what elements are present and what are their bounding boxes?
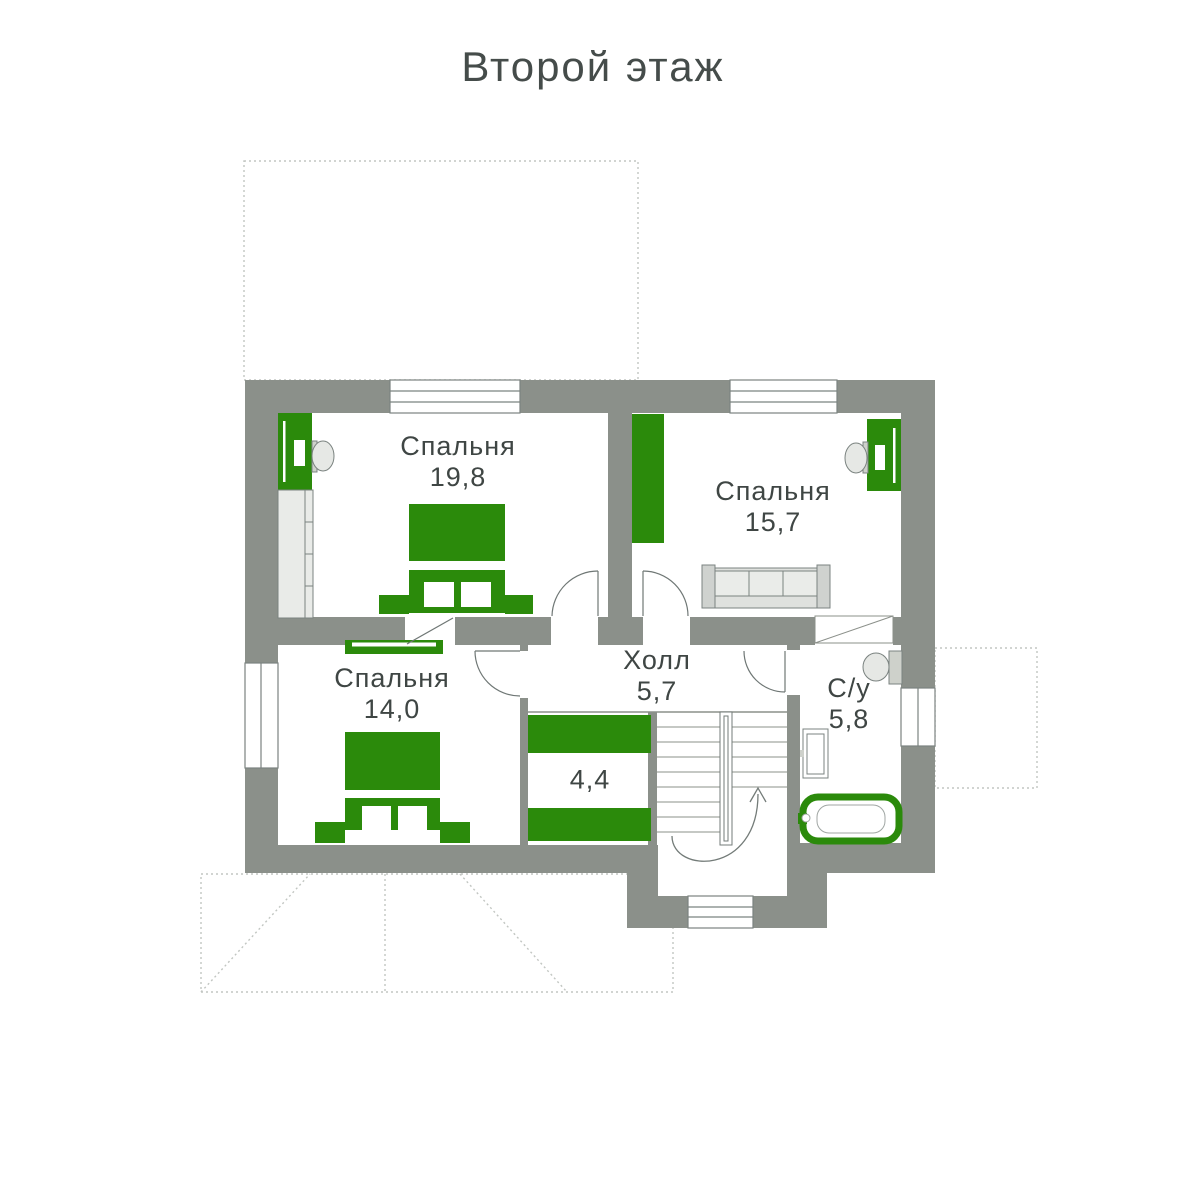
nightstand <box>315 822 345 843</box>
window-bedroom1-top <box>390 380 520 413</box>
room-name: Спальня <box>715 476 831 507</box>
wall-bath-jamb <box>787 645 800 650</box>
room-area: 14,0 <box>334 694 450 725</box>
wall-bottom-bath <box>800 843 935 873</box>
roof-outline-bottom <box>201 874 673 992</box>
wall-stair-bay-left <box>627 845 658 928</box>
window-bedroom2-top <box>730 380 837 413</box>
wall-stairs-bath <box>787 695 800 928</box>
room-name: Спальня <box>400 431 516 462</box>
room-label-closet: 4,4 <box>570 765 611 796</box>
office-chair-bedroom2 <box>845 442 868 473</box>
room-area: 19,8 <box>400 462 516 493</box>
office-chair-bedroom1 <box>312 441 334 472</box>
room-label-bedroom-1: Спальня 19,8 <box>400 431 516 493</box>
stair-divider <box>720 712 732 845</box>
wall-mid-e <box>893 617 935 645</box>
tv-stand-bedroom3 <box>345 640 443 654</box>
sofa-bedroom2 <box>702 565 830 608</box>
room-label-bedroom-2: Спальня 15,7 <box>715 476 831 538</box>
wall-mid-b <box>455 617 551 645</box>
room-area: 4,4 <box>570 765 611 796</box>
pillow <box>362 806 391 830</box>
room-area: 5,8 <box>827 704 871 735</box>
wall-mid-c <box>598 617 643 645</box>
room-area: 5,7 <box>623 676 691 707</box>
room-name: Спальня <box>334 663 450 694</box>
closet-cabinet-bottom <box>528 808 651 841</box>
window-stair-bay <box>688 896 753 928</box>
wall-mid-d <box>690 617 815 645</box>
wall-bottom-left <box>245 845 627 873</box>
desk-bedroom1 <box>278 413 312 490</box>
pillow <box>461 582 491 607</box>
nightstand <box>379 595 409 614</box>
room-label-bathroom: С/у 5,8 <box>827 673 871 735</box>
closet-cabinet-top <box>528 715 651 753</box>
window-bedroom3-left <box>245 663 278 768</box>
roof-outline-right <box>935 648 1037 788</box>
nightstand <box>505 595 533 614</box>
wall-bedroom3-jamb <box>520 645 528 651</box>
window-bath-right <box>901 688 935 746</box>
floor-plan: Второй этаж Спальня 19,8 Спальня 15,7 Сп… <box>0 0 1198 1200</box>
bathtub-icon <box>798 797 899 841</box>
sink-icon <box>800 729 828 778</box>
bath-faucet <box>802 814 810 822</box>
pillow <box>424 582 454 607</box>
monitor-icon <box>875 445 885 470</box>
floor-plan-drawing <box>0 0 1198 1200</box>
pillow <box>398 806 427 830</box>
room-area: 15,7 <box>715 507 831 538</box>
room-label-bedroom-3: Спальня 14,0 <box>334 663 450 725</box>
desk-bedroom2 <box>867 419 901 491</box>
room-name: Холл <box>623 645 691 676</box>
room-name: С/у <box>827 673 871 704</box>
vent-shaft <box>815 616 893 643</box>
nightstand <box>440 822 470 843</box>
monitor-icon <box>294 440 305 466</box>
room-label-hall: Холл 5,7 <box>623 645 691 707</box>
floor-title: Второй этаж <box>461 43 724 91</box>
wardrobe-bedroom2 <box>632 414 664 543</box>
wardrobe-bedroom1 <box>278 490 313 618</box>
wall-between-bedrooms <box>608 380 632 617</box>
roof-outline-top <box>244 161 638 380</box>
wall-bedroom3-hall <box>520 698 528 845</box>
